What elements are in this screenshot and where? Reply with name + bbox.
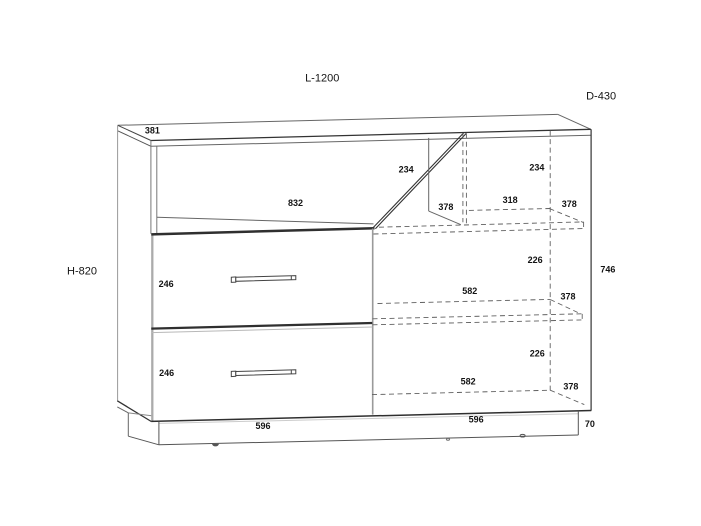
- svg-text:378: 378: [563, 381, 578, 391]
- svg-text:318: 318: [503, 195, 518, 205]
- svg-text:226: 226: [530, 349, 545, 359]
- svg-text:246: 246: [159, 279, 174, 289]
- svg-text:H-820: H-820: [67, 266, 97, 278]
- svg-text:378: 378: [560, 292, 575, 302]
- svg-text:746: 746: [600, 264, 615, 274]
- svg-text:582: 582: [461, 377, 476, 387]
- svg-text:596: 596: [255, 421, 270, 431]
- svg-text:381: 381: [145, 126, 160, 136]
- svg-text:226: 226: [528, 255, 543, 265]
- svg-text:70: 70: [585, 419, 595, 429]
- svg-text:246: 246: [159, 368, 174, 378]
- svg-text:582: 582: [462, 286, 477, 296]
- svg-text:D-430: D-430: [586, 91, 616, 103]
- svg-text:596: 596: [469, 414, 484, 424]
- svg-text:L-1200: L-1200: [305, 73, 339, 85]
- svg-text:378: 378: [562, 199, 577, 209]
- svg-text:234: 234: [399, 165, 414, 175]
- svg-text:832: 832: [288, 198, 303, 208]
- svg-text:378: 378: [438, 202, 453, 212]
- svg-text:234: 234: [529, 163, 544, 173]
